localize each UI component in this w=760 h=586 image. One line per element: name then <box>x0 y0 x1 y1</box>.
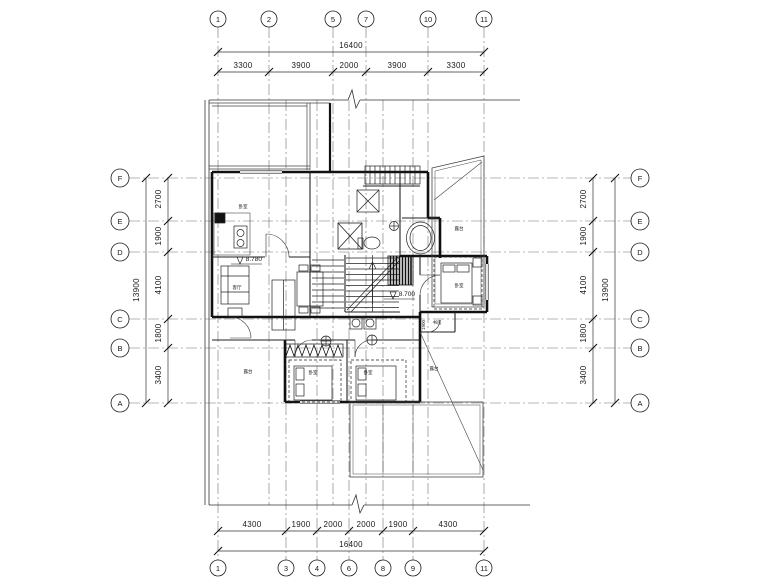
svg-text:1: 1 <box>216 15 220 24</box>
svg-text:4300: 4300 <box>243 520 262 529</box>
svg-text:2000: 2000 <box>357 520 376 529</box>
svg-text:11: 11 <box>480 15 488 24</box>
svg-text:3900: 3900 <box>292 61 311 70</box>
svg-text:3400: 3400 <box>154 365 163 384</box>
coffee-table <box>228 308 242 317</box>
svg-text:2000: 2000 <box>324 520 343 529</box>
room-label-study: 书房 <box>433 319 442 326</box>
svg-text:2: 2 <box>267 15 271 24</box>
bathroom-fixtures <box>357 190 435 254</box>
svg-text:1900: 1900 <box>154 226 163 245</box>
window-symbols <box>240 172 487 402</box>
svg-text:7: 7 <box>364 15 368 24</box>
svg-text:3300: 3300 <box>447 61 466 70</box>
grid-bubbles <box>111 11 649 576</box>
bed-symbol-2 <box>356 366 396 400</box>
dimension-text: 16400 3300 3900 2000 3900 3300 4300 1900… <box>132 41 610 549</box>
room-label-bedroom-tl: 卧室 <box>239 203 248 210</box>
stair-upper <box>365 166 420 184</box>
break-symbol-top <box>348 90 360 108</box>
svg-text:1800: 1800 <box>154 323 163 342</box>
room-label-bedroom-r: 卧室 <box>455 282 464 289</box>
svg-text:2700: 2700 <box>154 189 163 208</box>
svg-text:D: D <box>117 248 123 257</box>
toilet-symbol <box>364 237 380 249</box>
interior-partitions <box>212 172 455 402</box>
drawing-sheet: 16400 3300 3900 2000 3900 3300 4300 1900… <box>0 0 760 586</box>
svg-text:1900: 1900 <box>292 520 311 529</box>
bathtub-symbol <box>407 222 435 254</box>
room-labels: 卧室 客厅 卧室 卧室 卧室 书房 露台 露台 露台 <box>233 203 464 376</box>
svg-text:C: C <box>637 315 643 324</box>
elevation-lower-label: 8.700 <box>399 291 416 298</box>
svg-text:C: C <box>117 315 123 324</box>
room-label-terrace-b: 露台 <box>430 365 439 372</box>
stair-main <box>312 255 399 312</box>
dim-bottom-total: 16400 <box>339 540 363 549</box>
room-dim-label: 1900 <box>421 319 426 330</box>
svg-text:3: 3 <box>284 564 288 573</box>
svg-text:4100: 4100 <box>579 275 588 294</box>
svg-text:6: 6 <box>347 564 351 573</box>
svg-text:4300: 4300 <box>439 520 458 529</box>
svg-text:3300: 3300 <box>234 61 253 70</box>
shaft <box>338 223 362 249</box>
elevation-triangle-lower <box>390 292 396 299</box>
dimension-system <box>142 48 619 555</box>
wardrobe-hatch <box>286 344 343 357</box>
svg-text:E: E <box>117 217 122 226</box>
terrace-bottom <box>350 332 483 477</box>
svg-text:4: 4 <box>315 564 319 573</box>
room-label-bedroom-b1: 卧室 <box>309 369 318 376</box>
svg-text:2700: 2700 <box>579 189 588 208</box>
svg-text:4100: 4100 <box>154 275 163 294</box>
break-symbol-bottom <box>352 495 364 513</box>
svg-text:B: B <box>117 344 122 353</box>
terrace-top-left <box>209 103 330 172</box>
bedroom-furniture <box>289 257 482 402</box>
svg-text:8: 8 <box>381 564 385 573</box>
closet-dark <box>388 256 413 285</box>
appliance-symbol <box>215 213 225 223</box>
svg-text:E: E <box>637 217 642 226</box>
room-label-terrace-l: 露台 <box>244 368 253 375</box>
svg-text:11: 11 <box>480 564 488 573</box>
svg-text:1900: 1900 <box>389 520 408 529</box>
kitchen-fixtures <box>214 213 250 255</box>
svg-text:D: D <box>637 248 643 257</box>
svg-text:A: A <box>117 399 122 408</box>
svg-text:2000: 2000 <box>340 61 359 70</box>
svg-text:1800: 1800 <box>579 323 588 342</box>
svg-text:A: A <box>637 399 642 408</box>
svg-text:1: 1 <box>216 564 220 573</box>
living-furniture <box>221 265 323 330</box>
dim-left-total: 13900 <box>132 278 141 302</box>
exterior-walls <box>212 172 487 402</box>
elevation-triangle-upper <box>237 257 243 264</box>
svg-text:9: 9 <box>411 564 415 573</box>
grid-lines <box>129 27 631 560</box>
svg-text:B: B <box>637 344 642 353</box>
svg-text:3400: 3400 <box>579 365 588 384</box>
grid-bubble-labels: 1 2 5 7 10 11 1 3 4 6 8 9 11 F E D C B A… <box>117 15 643 573</box>
elevation-upper-label: 8.780 <box>246 256 263 263</box>
svg-text:F: F <box>638 174 643 183</box>
room-label-terrace-tr: 露台 <box>455 225 464 232</box>
svg-text:5: 5 <box>331 15 335 24</box>
room-label-bedroom-b2: 卧室 <box>364 369 373 376</box>
svg-text:3900: 3900 <box>388 61 407 70</box>
svg-text:F: F <box>118 174 123 183</box>
dim-top-total: 16400 <box>339 41 363 50</box>
room-label-living: 客厅 <box>233 284 242 291</box>
svg-text:10: 10 <box>424 15 432 24</box>
svg-text:1900: 1900 <box>579 226 588 245</box>
floorplan-canvas: 16400 3300 3900 2000 3900 3300 4300 1900… <box>0 0 760 586</box>
dim-right-total: 13900 <box>601 278 610 302</box>
